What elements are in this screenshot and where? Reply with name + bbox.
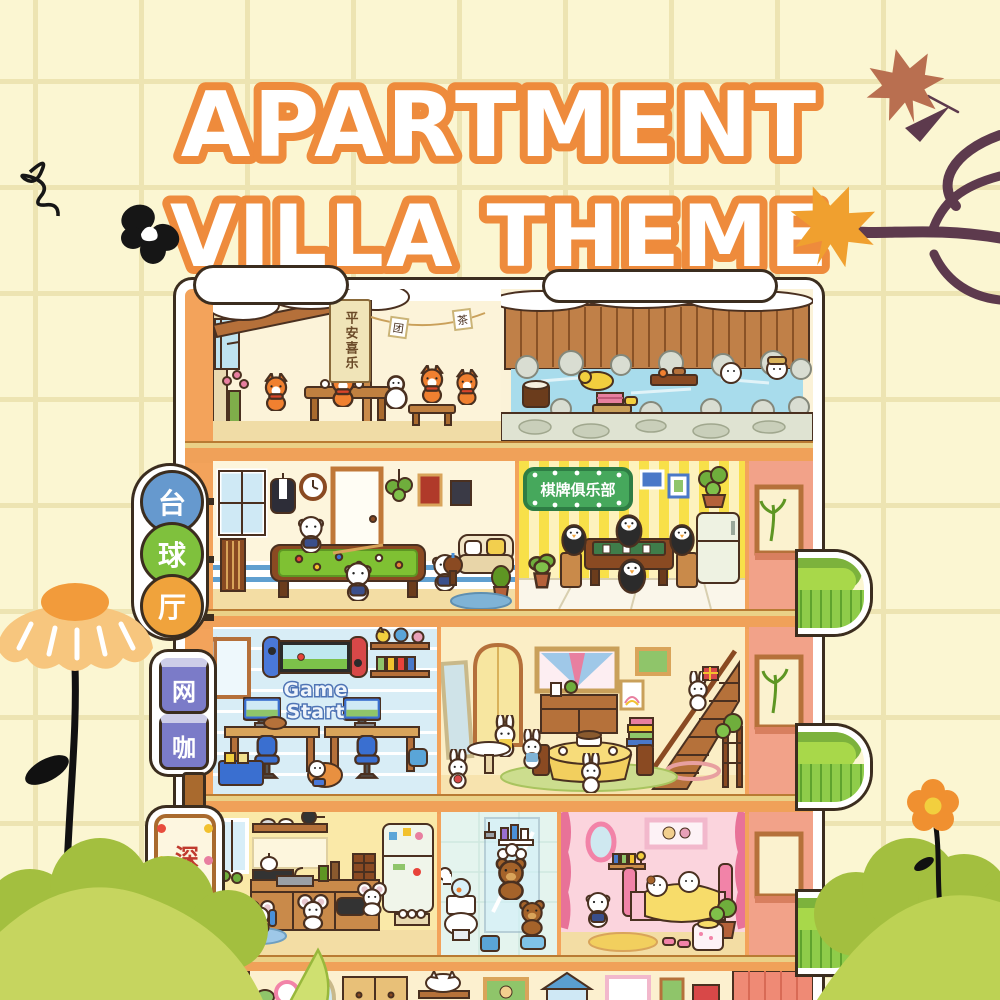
penguin-player xyxy=(617,515,642,546)
snow-cap xyxy=(545,272,775,300)
book-stack xyxy=(627,718,653,746)
room-kitchen xyxy=(213,812,437,955)
hanging-plant xyxy=(386,469,412,501)
cabinet xyxy=(697,513,739,583)
room-bathroom xyxy=(441,812,557,955)
room-lower-floor-partial xyxy=(213,971,813,1000)
balcony-fence xyxy=(798,930,864,968)
game-start-text: Game Start xyxy=(255,679,377,723)
toilet-paper xyxy=(441,868,451,884)
floor-separator xyxy=(185,441,813,463)
bunting-flag: 茶 xyxy=(452,308,473,331)
snowman xyxy=(386,376,407,409)
oval-mirror xyxy=(588,824,614,860)
dog-house xyxy=(543,973,591,1000)
net-cafe-key: 网 xyxy=(159,658,209,714)
chair xyxy=(637,745,653,775)
wooden-bucket xyxy=(523,381,549,407)
bunting-flag: 团 xyxy=(388,316,410,339)
coral-wall xyxy=(733,971,813,1000)
sign-late-night-diner: 深夜食堂 xyxy=(148,808,222,1000)
cue-rack xyxy=(221,539,245,591)
office-chair xyxy=(355,736,378,778)
hanging-scroll: 平安喜乐 xyxy=(329,299,371,383)
room-internet-cafe: Game Start xyxy=(213,627,437,794)
puppy xyxy=(587,893,610,927)
bucket xyxy=(409,749,427,766)
wall-clock xyxy=(301,475,325,499)
snow-cap xyxy=(196,268,346,302)
room-rooftop-fox-terrace: 平安喜乐 团 茶 xyxy=(213,289,501,441)
balcony-fence xyxy=(798,764,864,802)
dish-shelf xyxy=(253,812,327,832)
sign-billiards-hall: 台 球 厅 xyxy=(134,466,206,638)
toilet xyxy=(445,879,477,940)
window xyxy=(219,471,265,535)
room-billiards-hall xyxy=(213,461,515,609)
toiletry-shelf xyxy=(499,825,533,845)
window-open xyxy=(213,639,249,697)
diner-sign-text: 深夜食堂 xyxy=(168,845,203,965)
rainbow-picture xyxy=(621,681,643,709)
wall-clock xyxy=(276,982,298,1000)
balcony-fence xyxy=(798,590,864,628)
rabbit-dress xyxy=(526,753,538,762)
hanging-plant xyxy=(699,467,727,507)
gift-box xyxy=(703,667,718,680)
cat-in-basket xyxy=(419,971,469,998)
penguin-player xyxy=(619,560,645,593)
red-box xyxy=(693,985,719,1000)
terrace-floor xyxy=(213,421,501,441)
net-cafe-key: 咖 xyxy=(159,714,209,770)
club-sign-text: 棋牌俱乐部 xyxy=(540,481,615,499)
toaster xyxy=(337,898,365,915)
laundry-basket xyxy=(693,920,723,950)
leaf-decor xyxy=(256,990,274,1000)
room-rooftop-hot-spring xyxy=(501,289,813,441)
wall-game-console xyxy=(263,637,367,677)
fox-character xyxy=(422,365,442,403)
standing-mirror xyxy=(442,662,472,757)
blue-bucket xyxy=(481,936,499,951)
room-mahjong-club: 棋牌俱乐部 xyxy=(519,461,745,609)
curtain-right xyxy=(740,812,743,928)
fridge xyxy=(383,824,433,912)
framed-picture xyxy=(661,979,683,1000)
room-bedroom xyxy=(561,812,745,955)
black-flower-icon xyxy=(118,200,184,264)
dog-player xyxy=(345,563,370,601)
billiards-sign-ball: 厅 xyxy=(140,574,204,638)
folding-chair xyxy=(561,553,581,587)
drawers xyxy=(343,977,407,1000)
fox-character xyxy=(266,373,286,411)
room-dining xyxy=(441,627,745,794)
curtain-left xyxy=(563,812,566,928)
bear-shower xyxy=(497,859,525,900)
club-signboard: 棋牌俱乐部 xyxy=(525,469,631,509)
book-shelf xyxy=(609,852,645,869)
book-shelf xyxy=(371,657,429,677)
rug xyxy=(451,593,511,609)
wall-frames xyxy=(419,475,471,505)
egg-tray xyxy=(395,910,429,925)
wall-frames xyxy=(641,471,688,497)
doodle-squiggle xyxy=(22,163,58,216)
towel-stack xyxy=(593,393,637,413)
bathing-duck xyxy=(579,371,613,390)
bear-cub xyxy=(520,901,544,935)
balcony-floor3 xyxy=(798,726,870,808)
hanging-jacket xyxy=(271,473,295,513)
framed-picture xyxy=(637,649,669,674)
fox-character xyxy=(457,369,476,405)
apartment-house-sticker: 平安喜乐 团 茶 xyxy=(176,280,822,1000)
dog-player xyxy=(299,517,323,553)
bath-stool xyxy=(521,936,545,949)
wall-art xyxy=(647,820,705,847)
plush-shelf xyxy=(371,627,429,649)
poster-canvas: APARTMENT VILLA THEME xyxy=(0,0,1000,1000)
autumn-branch xyxy=(845,96,1000,300)
milk-bottle xyxy=(269,910,276,926)
bathing-bear xyxy=(721,363,741,383)
floor-separator xyxy=(185,794,813,814)
oval-mirror xyxy=(308,977,334,1000)
keyboard xyxy=(355,723,375,727)
floor-separator xyxy=(185,609,813,629)
balcony-floor4 xyxy=(798,892,870,974)
rug xyxy=(589,933,657,951)
maple-leaf-orange-icon xyxy=(776,170,891,282)
rabbit-guest xyxy=(523,728,540,768)
bow xyxy=(454,775,462,783)
diner-signboard: 深夜食堂 xyxy=(154,814,216,996)
penguin-player xyxy=(670,525,693,555)
scroll-text: 平安喜乐 xyxy=(341,311,360,371)
penguin-player xyxy=(562,525,585,555)
balcony-floor2 xyxy=(798,552,870,634)
folding-chair xyxy=(677,553,697,587)
sign-net-cafe: 网 咖 xyxy=(152,652,214,774)
framed-picture xyxy=(607,977,649,1000)
bathing-dog-towel xyxy=(767,357,787,379)
